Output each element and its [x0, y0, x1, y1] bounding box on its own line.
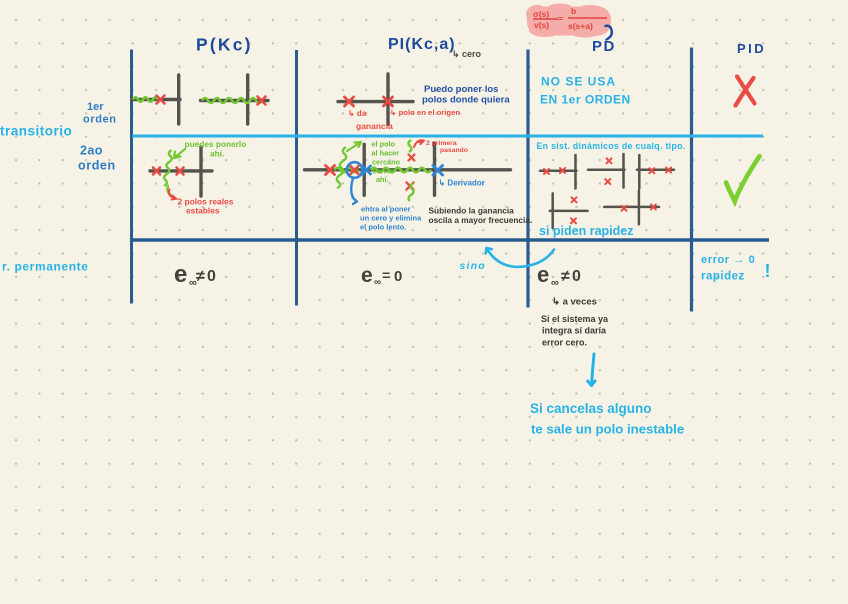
svg-text:error cero.: error cero. — [542, 338, 587, 348]
svg-text:0: 0 — [207, 268, 216, 285]
svg-text:oscila a mayor frecuencia.: oscila a mayor frecuencia. — [429, 215, 533, 225]
svg-text:ganancia: ganancia — [356, 121, 393, 131]
svg-text:e: e — [361, 264, 373, 287]
svg-text:pasando: pasando — [440, 147, 468, 154]
svg-text:Si cancelas alguno: Si cancelas alguno — [530, 401, 652, 416]
svg-text:polos donde quiera: polos donde quiera — [422, 95, 510, 106]
svg-text:si piden rapidez: si piden rapidez — [539, 224, 633, 238]
svg-text:=: = — [558, 14, 563, 24]
svg-text:orden: orden — [83, 114, 117, 126]
svg-text:el polo lento.: el polo lento. — [360, 223, 406, 232]
svg-text:≠: ≠ — [561, 268, 570, 285]
svg-text:rapidez: rapidez — [701, 271, 745, 283]
svg-text:PID: PID — [737, 41, 766, 56]
svg-text:orden: orden — [78, 159, 116, 173]
svg-text:∞: ∞ — [374, 277, 381, 288]
svg-text:!: ! — [765, 261, 771, 281]
svg-text:Subiendo la ganancia: Subiendo la ganancia — [429, 206, 515, 216]
svg-text:P(Kc): P(Kc) — [196, 35, 253, 55]
svg-text:↳ Derivador: ↳ Derivador — [439, 179, 485, 188]
svg-text:s(s+a): s(s+a) — [568, 21, 593, 31]
svg-text:↳ cero: ↳ cero — [452, 49, 482, 59]
svg-text:≠: ≠ — [196, 268, 205, 285]
svg-text:al hacer: al hacer — [372, 149, 400, 158]
svg-text:ahí.: ahí. — [376, 175, 389, 184]
svg-text:transitorio: transitorio — [0, 124, 72, 139]
svg-text:r. permanente: r. permanente — [2, 260, 89, 274]
svg-text:el polo: el polo — [372, 140, 396, 149]
svg-text:NO SE USA: NO SE USA — [541, 75, 616, 89]
svg-text:Si el sistema ya: Si el sistema ya — [541, 314, 609, 324]
svg-text:integra sí daría: integra sí daría — [542, 326, 607, 336]
svg-text:estables: estables — [186, 206, 220, 216]
svg-text:σ(s): σ(s) — [533, 9, 549, 19]
svg-text:PD: PD — [592, 38, 616, 55]
svg-text:Puedo poner los: Puedo poner los — [424, 84, 498, 95]
svg-text:b: b — [571, 6, 576, 16]
svg-text:=: = — [382, 267, 390, 283]
svg-text:2 primera: 2 primera — [426, 140, 457, 147]
svg-text:↳ polo en el origen: ↳ polo en el origen — [390, 108, 460, 117]
svg-text:puedes ponerlo: puedes ponerlo — [185, 139, 247, 149]
svg-text:un cero y elimina: un cero y elimina — [360, 214, 422, 223]
svg-text:error → 0: error → 0 — [701, 254, 755, 266]
svg-text:2ao: 2ao — [80, 144, 103, 158]
svg-text:PI(Kc,a): PI(Kc,a) — [388, 36, 456, 53]
svg-text:↳ da: ↳ da — [348, 109, 367, 118]
svg-text:0: 0 — [394, 268, 402, 285]
svg-text:te sale un polo inestable: te sale un polo inestable — [531, 422, 684, 437]
svg-text:↳ a veces: ↳ a veces — [552, 297, 597, 308]
svg-text:cercano: cercano — [372, 158, 401, 167]
svg-text:En sist. dinámicos de cualq. t: En sist. dinámicos de cualq. tipo. — [537, 141, 686, 151]
svg-text:EN 1er ORDEN: EN 1er ORDEN — [540, 93, 631, 107]
svg-text:1er: 1er — [87, 101, 104, 113]
svg-text:entra al poner: entra al poner — [361, 205, 411, 214]
svg-text:e: e — [174, 261, 187, 288]
svg-text:∞: ∞ — [551, 277, 559, 289]
svg-text:ahí.: ahí. — [210, 149, 224, 159]
svg-text:0: 0 — [572, 268, 581, 285]
svg-text:sino: sino — [460, 260, 486, 272]
svg-text:e: e — [537, 262, 549, 287]
svg-text:v(s): v(s) — [534, 20, 549, 30]
